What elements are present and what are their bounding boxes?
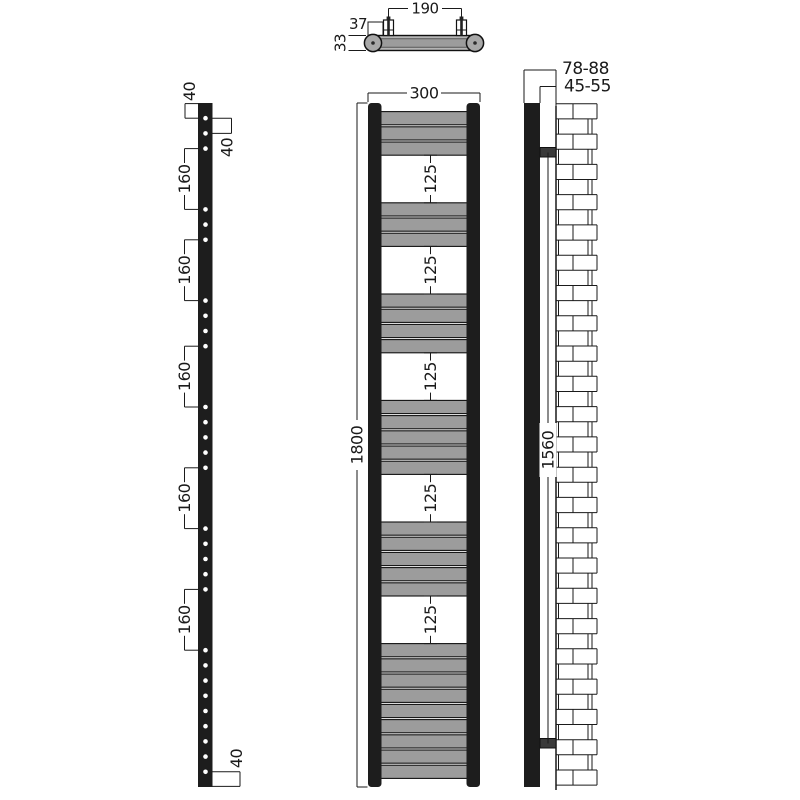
towel-bar: [381, 203, 468, 216]
dim-label-group: 33: [332, 30, 350, 56]
dim-label-group: 125: [421, 163, 440, 195]
towel-bar: [381, 324, 468, 337]
bracket-distance-label: 45-55: [564, 77, 611, 97]
towel-bar: [381, 233, 468, 246]
plan-rail-core: [377, 39, 471, 47]
dim-overall-height: 1800: [348, 103, 368, 787]
weld-dot: [203, 116, 208, 121]
plan-left-tube-center: [371, 41, 375, 45]
towel-bar: [381, 750, 468, 763]
profile-view: 40 40 160160160160160 40: [175, 82, 246, 788]
profile-top-offset-label: 40: [180, 82, 199, 102]
weld-dot: [203, 542, 208, 547]
weld-dot: [203, 770, 208, 775]
dim-section-spacing: 160: [175, 589, 199, 650]
plan-depth-label: 33: [332, 34, 350, 52]
towel-bar: [381, 461, 468, 474]
weld-dot: [203, 222, 208, 227]
plan-spacing-label: 190: [411, 0, 438, 18]
towel-bar: [381, 218, 468, 231]
dim-tube-depth: 33: [332, 30, 367, 56]
dim-label-group: 160: [175, 163, 194, 195]
weld-dot: [203, 238, 208, 243]
dim-section-spacing: 160: [175, 149, 199, 210]
weld-dot: [203, 146, 208, 151]
dim-label-group: 160: [175, 361, 194, 393]
profile-bottom-offset-label: 40: [227, 749, 246, 769]
towel-bar: [381, 644, 468, 657]
dim-label-group: 125: [421, 482, 440, 514]
plan-left-lug: [384, 17, 394, 36]
dim-rail-gap: 125: [421, 474, 440, 522]
plan-right-tube-center: [473, 41, 477, 45]
towel-bar: [381, 720, 468, 733]
weld-dot: [203, 344, 208, 349]
towel-bar: [381, 127, 468, 140]
dim-wall-clearances: 78-88 45-55: [524, 59, 611, 106]
weld-dot: [203, 466, 208, 471]
dim-label-group: 160: [175, 482, 194, 514]
section-dim-label: 160: [175, 362, 194, 391]
brick-wall: [556, 104, 597, 785]
weld-dot: [203, 298, 208, 303]
towel-bar: [381, 431, 468, 444]
weld-dot: [203, 754, 208, 759]
lug-pin-cap: [460, 17, 464, 21]
section-dim-label: 160: [175, 255, 194, 284]
plan-right-lug: [457, 17, 467, 36]
towel-bar: [381, 340, 468, 353]
towel-bar: [381, 112, 468, 125]
weld-dot: [203, 724, 208, 729]
plan-offset-label: 37: [349, 15, 367, 33]
weld-dot: [203, 420, 208, 425]
weld-dot: [203, 572, 208, 577]
towel-bar: [381, 735, 468, 748]
wall-view: 78-88 45-55 1560: [524, 59, 611, 790]
weld-dot: [203, 435, 208, 440]
profile-rail-bar: [198, 103, 213, 787]
weld-dot: [203, 739, 208, 744]
dim-section-spacing: 160: [175, 346, 199, 407]
weld-dot: [203, 678, 208, 683]
dim-bottom-offset: 40: [212, 749, 246, 787]
dim-label-group: 125: [421, 361, 440, 393]
section-dim-label: 160: [175, 605, 194, 634]
front-right-column: [467, 103, 481, 787]
weld-dot: [203, 663, 208, 668]
dim-label-group: 125: [421, 254, 440, 286]
towel-bar: [381, 765, 468, 778]
dim-section-spacing: 160: [175, 240, 199, 301]
towel-bar: [381, 446, 468, 459]
bracket-centres-label: 1560: [539, 430, 558, 469]
weld-dot: [203, 329, 208, 334]
dim-rail-gap: 125: [421, 596, 440, 644]
dim-label-group: 1800: [348, 420, 367, 470]
weld-dot: [203, 526, 208, 531]
towel-bar: [381, 416, 468, 429]
weld-dot: [203, 648, 208, 653]
dim-rail-gap: 125: [421, 155, 440, 203]
section-dim-label: 160: [175, 483, 194, 512]
dim-rail-gap: 125: [421, 353, 440, 401]
dim-label-group: 40: [180, 82, 199, 102]
towel-bar: [381, 659, 468, 672]
gap-dim-label: 125: [421, 484, 440, 513]
gap-dim-label: 125: [421, 605, 440, 634]
gap-dim-label: 125: [421, 256, 440, 285]
dim-bracket-centres: 1560: [539, 153, 558, 744]
towel-bar: [381, 689, 468, 702]
dim-box: [368, 22, 383, 36]
towel-bar: [381, 537, 468, 550]
towel-bar: [381, 309, 468, 322]
gap-dim-label: 125: [421, 164, 440, 193]
front-left-column: [368, 103, 382, 787]
plan-view: 190 37 33: [332, 0, 484, 56]
towel-bar: [381, 674, 468, 687]
section-dim-label: 160: [175, 164, 194, 193]
dim-label-group: 1560: [539, 423, 558, 477]
weld-dot: [203, 694, 208, 699]
front-height-label: 1800: [348, 425, 367, 464]
front-rail-bars: [381, 112, 468, 779]
weld-dot: [203, 709, 208, 714]
towel-bar: [381, 522, 468, 535]
dim-section-spacing: 160: [175, 468, 199, 529]
dim-bracket-offset: 37: [349, 15, 383, 36]
dim-bracket-spacing: 190: [389, 0, 462, 18]
dim-label-group: 160: [175, 604, 194, 636]
dim-rail-gap: 125: [421, 246, 440, 294]
dim-label-group: 160: [175, 254, 194, 286]
lug-pin-cap: [387, 17, 391, 21]
weld-dot: [203, 405, 208, 410]
towel-bar: [381, 142, 468, 155]
weld-dot: [203, 587, 208, 592]
front-width-label: 300: [409, 84, 438, 103]
profile-section-dims: 160160160160160: [175, 149, 199, 651]
towel-bar: [381, 568, 468, 581]
weld-dot: [203, 450, 208, 455]
profile-pitch-label: 40: [218, 138, 237, 158]
front-view: 300 1800 125125125125125: [348, 84, 481, 788]
towel-bar: [381, 583, 468, 596]
towel-bar: [381, 552, 468, 565]
towel-bar: [381, 294, 468, 307]
towel-bar: [381, 704, 468, 717]
gap-dim-label: 125: [421, 362, 440, 391]
weld-dot: [203, 314, 208, 319]
dim-top-offset: 40: [180, 82, 199, 119]
dim-overall-width: 300: [368, 84, 480, 103]
dim-bar-pitch: 40: [212, 118, 237, 157]
weld-dot: [203, 131, 208, 136]
weld-dot: [203, 557, 208, 562]
weld-dot: [203, 207, 208, 212]
dim-label-group: 125: [421, 604, 440, 636]
towel-bar: [381, 400, 468, 413]
dim-label-group: 40: [227, 749, 246, 769]
radiator-technical-drawing: 190 37 33: [0, 0, 800, 800]
dim-label-group: 40: [218, 138, 237, 158]
